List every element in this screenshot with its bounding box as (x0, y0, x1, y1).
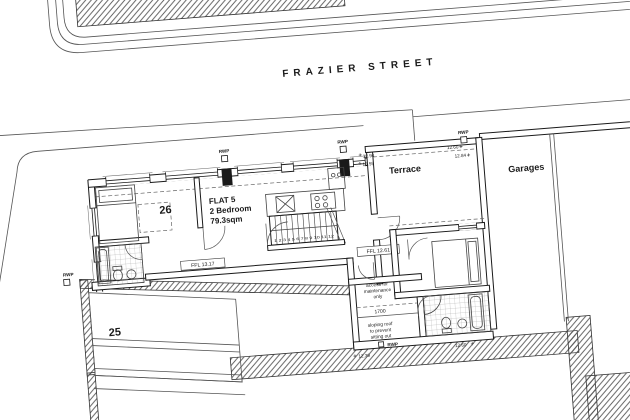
bed-1 (95, 185, 138, 244)
level-terrace-nw-upper: 12.94 (363, 153, 375, 159)
bathroom-2 (417, 291, 491, 336)
svg-text:RWP: RWP (63, 272, 74, 278)
neighbor-building-north (42, 0, 630, 55)
neighbor-building-hatch (72, 0, 345, 27)
garages-label: Garages (508, 162, 545, 175)
property-26-label: 26 (159, 204, 172, 217)
well-width-dimension: 1700 (357, 306, 419, 321)
svg-text:RWP: RWP (458, 129, 469, 135)
svg-text:only: only (373, 294, 383, 301)
street-name-label: FRAZIER STREET (282, 57, 438, 80)
staircase: 1 2 3 4 5 6 7 8 9 10 11 12 (265, 207, 346, 251)
svg-text:RWP: RWP (387, 342, 398, 348)
bed-2 (432, 238, 481, 287)
level-wing-sw: 12.39 (358, 353, 370, 359)
bathroom-1 (95, 243, 144, 285)
level-terrace-nw-lower: 12.59 (362, 161, 374, 167)
property-25-label: 25 (108, 326, 121, 339)
svg-text:RWP: RWP (219, 148, 230, 154)
svg-text:RWP: RWP (337, 139, 348, 145)
rwp-marker-top-center: RWP (219, 148, 231, 162)
kitchen-counter (264, 167, 347, 216)
level-wing-se: 12.60 (455, 342, 467, 348)
rwp-marker-terrace-nw: RWP (337, 139, 349, 153)
terrace-label: Terrace (389, 163, 422, 175)
flat-bedrooms-label: 2 Bedroom (209, 204, 251, 216)
maintenance-well: access for maintenance only 1700 sloping… (355, 279, 420, 342)
svg-text:1700: 1700 (374, 308, 386, 315)
chimney-pier (221, 168, 232, 186)
floor-plan-svg: FRAZIER STREET 25 (0, 0, 630, 420)
kitchen-sink (276, 195, 295, 212)
level-terrace-ne-lower: 12.84 (454, 153, 466, 159)
rwp-marker-west: RWP (63, 272, 75, 286)
garages-area: Garages (475, 120, 630, 329)
floor-plan-canvas: FRAZIER STREET 25 (0, 0, 630, 420)
level-terrace-ne-upper: 12.60 (447, 144, 459, 150)
kitchen-hob (311, 192, 336, 210)
flat-area-label: 79.3sqm (210, 214, 243, 225)
property-25: 25 (87, 281, 245, 406)
